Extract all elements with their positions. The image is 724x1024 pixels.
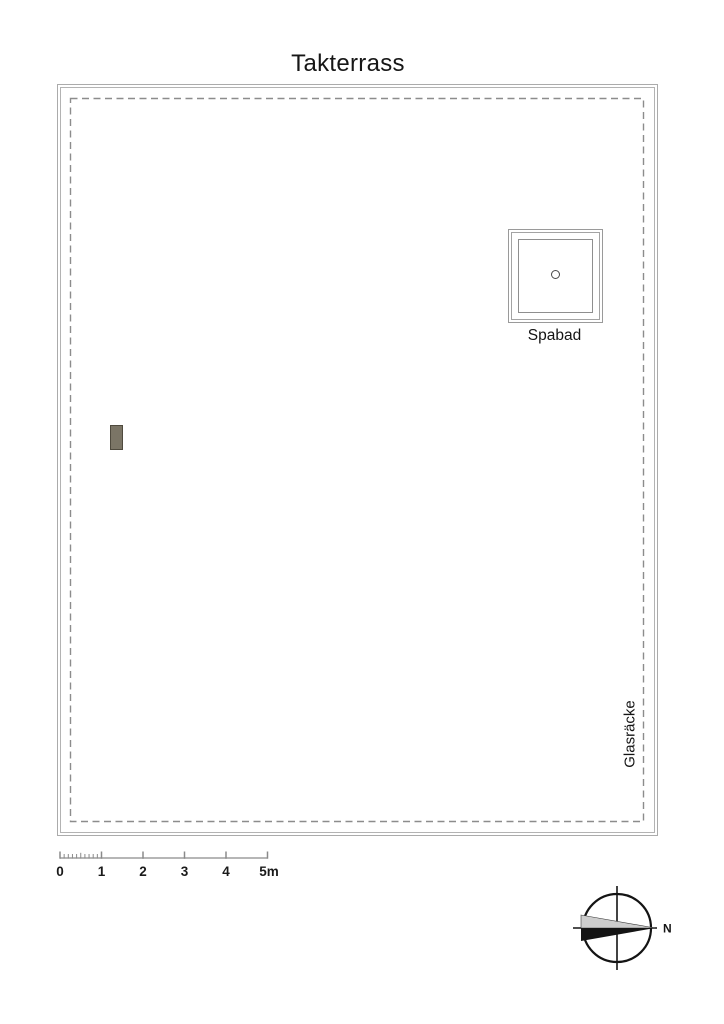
- glass-railing-label: Glasräcke: [622, 700, 639, 768]
- spa-tub: [508, 229, 603, 323]
- dashed-outline-rect: [71, 99, 644, 822]
- drain-marker: [110, 425, 123, 450]
- page-title: Takterrass: [57, 50, 639, 78]
- north-compass: N: [560, 870, 690, 986]
- terrace-dashed-outline: [57, 84, 658, 836]
- terrace-boundary: [57, 84, 658, 836]
- scale-label-3: 3: [181, 864, 189, 879]
- scale-label-4: 4: [222, 864, 230, 879]
- compass-needle-upper: [581, 915, 655, 928]
- compass-needle-lower: [581, 928, 655, 941]
- scale-label-2: 2: [139, 864, 147, 879]
- floor-plan-canvas: Takterrass Spabad Glasräcke: [0, 0, 724, 1024]
- scale-label-0: 0: [56, 864, 64, 879]
- scale-label-1: 1: [98, 864, 106, 879]
- spa-label: Spabad: [506, 327, 603, 345]
- north-label: N: [663, 922, 672, 936]
- scale-bar: 0 1 2 3 4 5m: [50, 843, 285, 883]
- scale-label-5m: 5m: [259, 864, 279, 879]
- spa-jet-icon: [551, 270, 560, 279]
